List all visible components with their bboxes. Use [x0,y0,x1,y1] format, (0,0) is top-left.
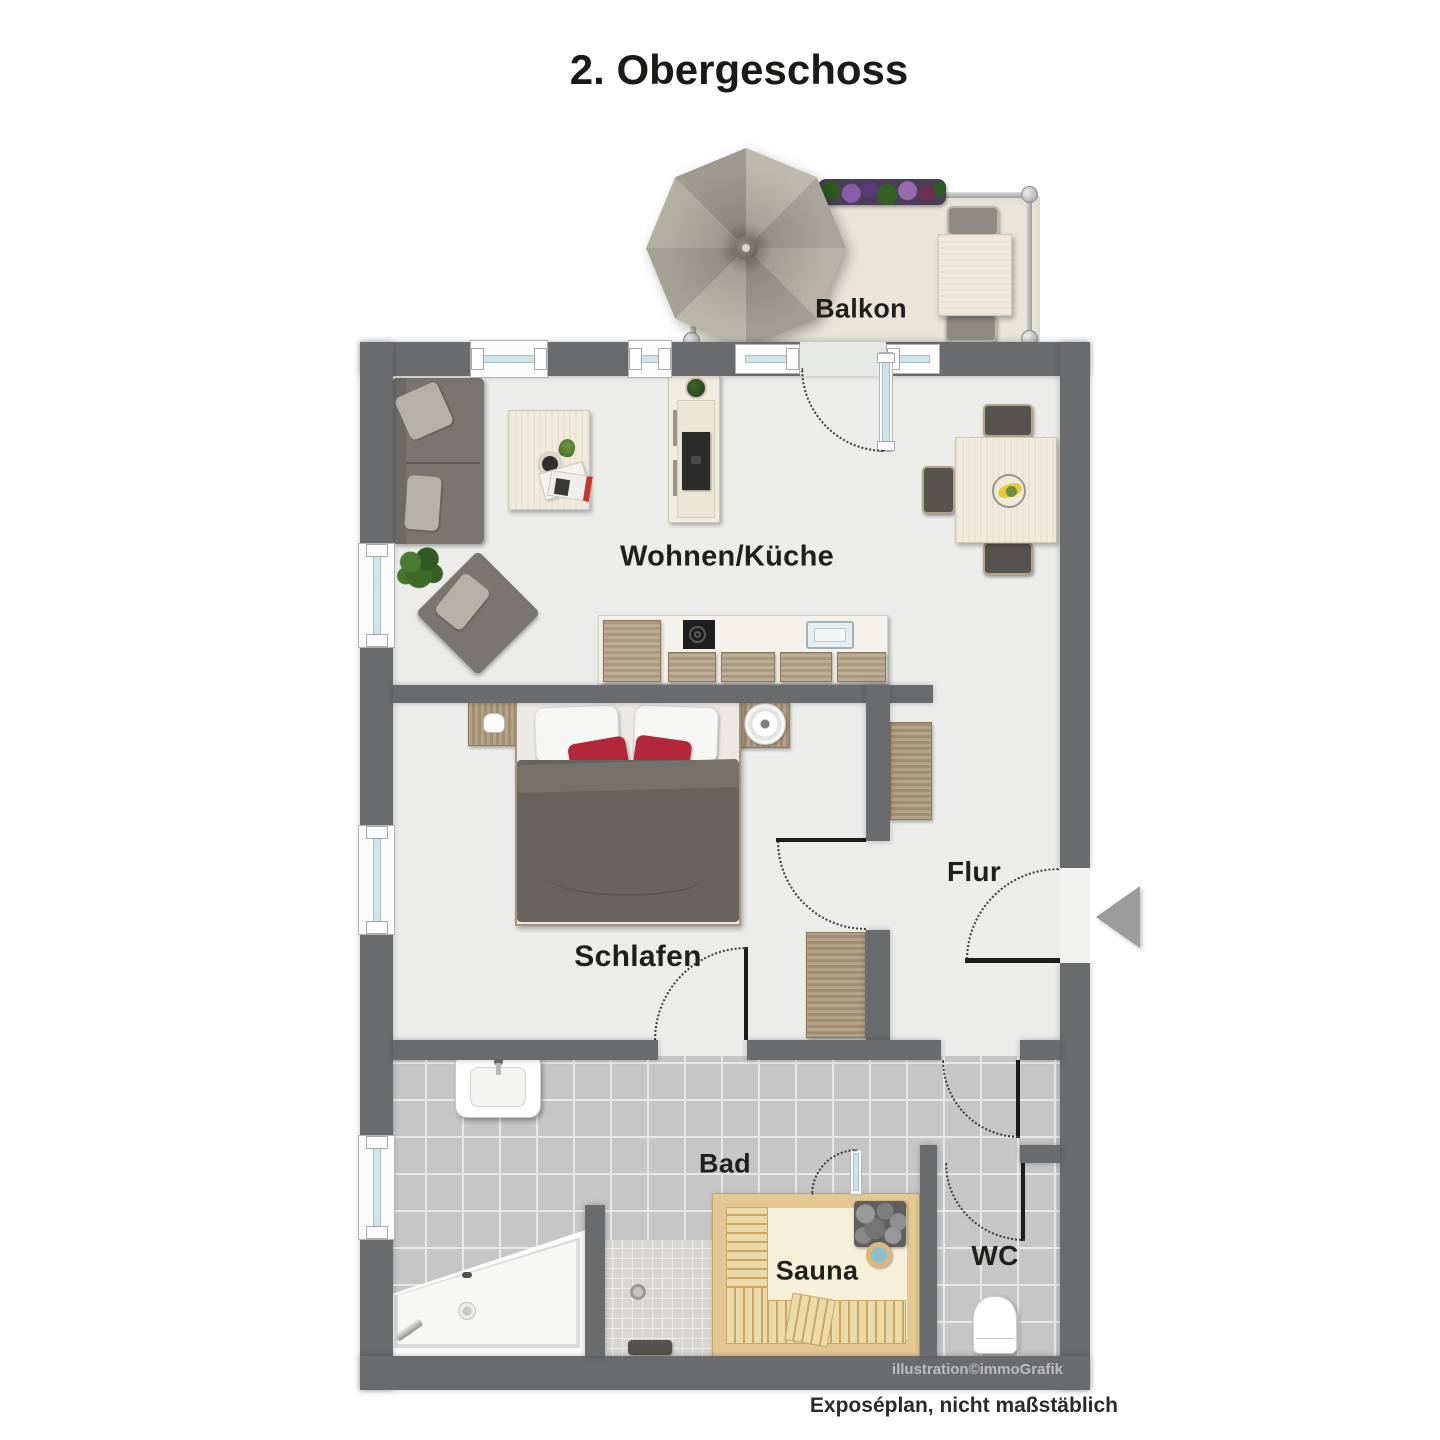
hall-cabinet [890,722,932,820]
window [358,825,395,935]
wall-bedroom-hall [866,685,890,841]
bed-duvet [517,760,739,922]
balcony-chair [947,206,999,236]
scale-disclaimer: Exposéplan, nicht maßstäblich [810,1394,1118,1418]
room-label-bad: Bad [699,1149,751,1180]
wall-shower-divider [585,1205,605,1356]
dining-chair [983,404,1033,437]
page-title: 2. Obergeschoss [570,46,908,94]
balcony-table [938,234,1012,316]
wall-bedroom-hall [866,930,890,1042]
cooktop-icon [683,620,715,649]
shower-fixture-icon [628,1340,672,1355]
entrance-arrow-icon [1096,886,1140,948]
window [358,1135,395,1240]
wall-bath-top [747,1040,941,1060]
nightstand [468,702,516,746]
wall-living-bedroom [393,685,933,703]
room-label-wc: WC [971,1240,1018,1272]
sauna-backrest [784,1293,836,1348]
room-label-sauna: Sauna [776,1256,859,1287]
dining-table [955,437,1057,543]
balcony-chair [945,314,997,342]
kitchen-cabinet-front [668,652,716,682]
dining-chair [983,542,1033,575]
kitchen-sink-icon [806,621,854,649]
wall-bath-top [393,1040,658,1060]
sauna-bucket-icon [866,1242,892,1268]
room-label-schlafen: Schlafen [574,940,701,974]
kitchen-cabinet-front [721,652,775,682]
sauna-bench [726,1207,768,1287]
room-label-balkon: Balkon [815,294,907,325]
room-label-wohnen-kueche: Wohnen/Küche [620,541,834,574]
toilet [973,1296,1017,1354]
coffee-table [508,410,590,510]
wall-wc-left [920,1145,937,1356]
wall-wc-top [1020,1145,1060,1163]
kitchen-cabinet-front [837,652,886,682]
sofa-pillow [404,475,442,531]
kitchen-tall-cabinet [603,620,661,682]
balcony-railing-right [1026,192,1032,344]
wall-outer-right [1060,963,1090,1390]
railing-post-icon [1021,186,1038,203]
entrance-opening [1060,868,1090,963]
sauna-bench [726,1287,768,1344]
bathroom-sink [455,1052,541,1118]
illustration-credit: illustration©immoGrafik [892,1361,1063,1378]
bathtub [386,1228,588,1356]
plant-icon [396,546,444,592]
balcony-door-sidelight [735,344,800,374]
window [358,543,395,648]
sauna-heater-icon [854,1201,906,1247]
window [470,340,548,378]
fan-icon [744,703,786,745]
floorplan-page: 2. Obergeschoss [0,0,1440,1440]
room-label-flur: Flur [947,856,1001,888]
tv-icon [682,432,710,490]
wall-outer-right [1060,342,1090,868]
kitchen-cabinet-front [780,652,832,682]
dining-chair [922,466,955,514]
window [628,340,672,378]
plant-icon [685,377,707,399]
wardrobe [806,932,866,1038]
wall-bath-top [1020,1040,1060,1060]
shower-drain-icon [630,1284,646,1300]
